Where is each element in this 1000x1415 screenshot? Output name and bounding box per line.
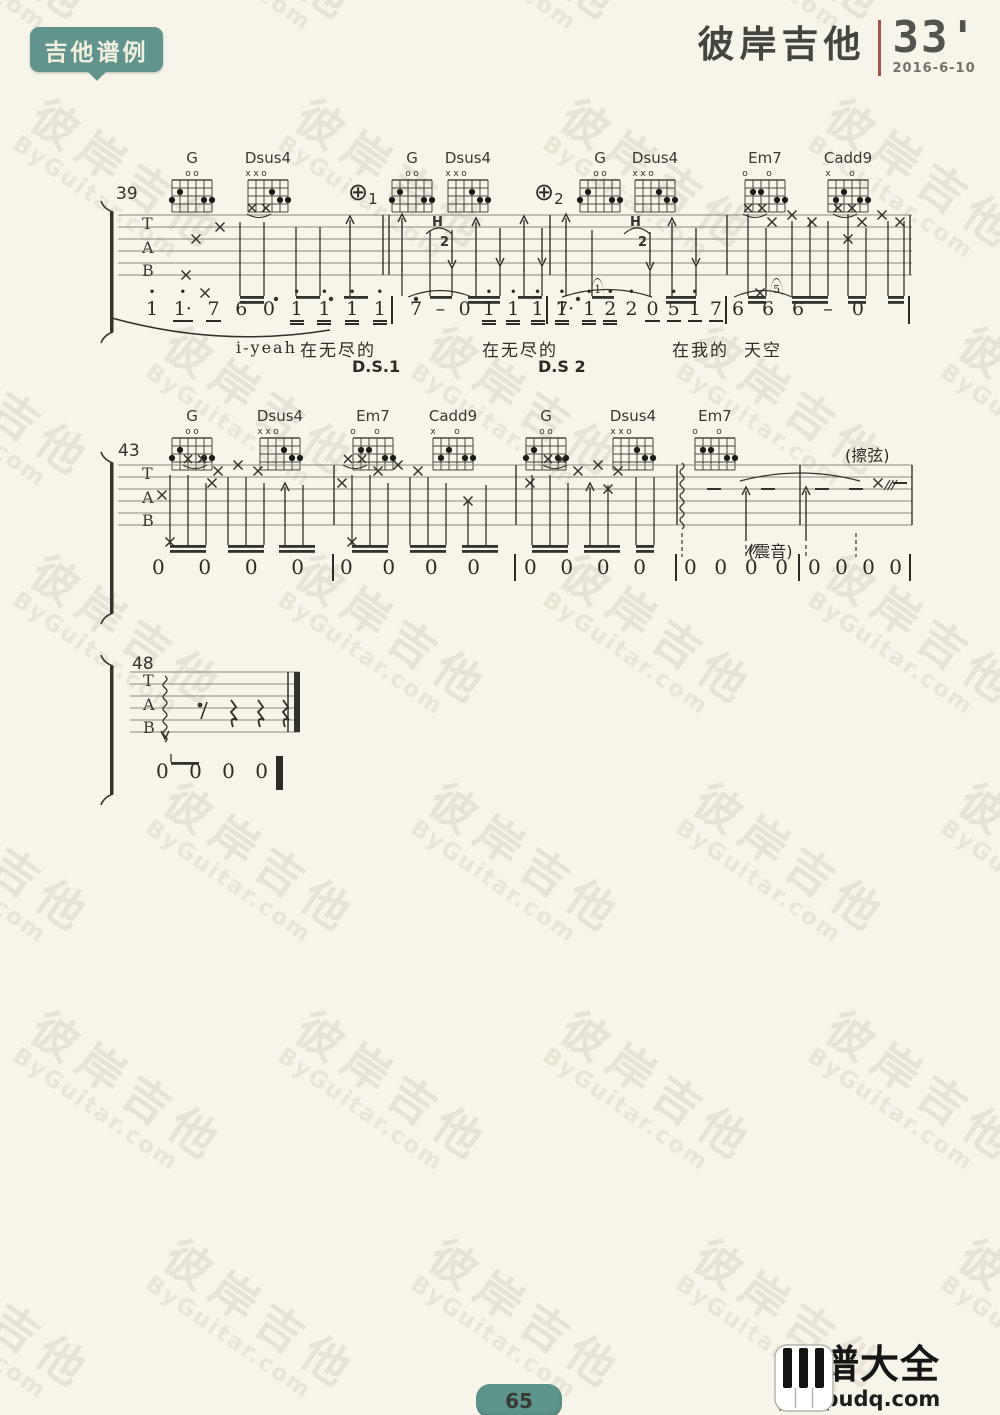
svg-text:o: o (692, 427, 698, 437)
page-number-pill: 65 (476, 1384, 562, 1415)
jianpu-token: 1• (532, 298, 544, 320)
jianpu-token: 0 (425, 556, 438, 578)
jianpu-token: 7 (710, 298, 722, 320)
jianpu-barline (909, 554, 911, 581)
watermark-tile: 彼岸吉他ByGuitar.com (141, 1222, 374, 1415)
jianpu-barline (276, 756, 283, 790)
jianpu-measure: 0000 (808, 556, 902, 578)
jianpu-token: 0 (255, 760, 268, 782)
jianpu-token: 5• (668, 298, 680, 320)
scratch-strings-annotation: (擦弦) (845, 442, 890, 466)
svg-text:o: o (413, 169, 419, 179)
page-number: 65 (505, 1389, 533, 1413)
svg-text:x: x (825, 169, 831, 179)
chord-label: Dsus4 (242, 150, 294, 166)
svg-text:o: o (350, 427, 356, 437)
brand-name: 彼岸吉他 (698, 16, 866, 74)
chord-label: Cadd9 (822, 150, 874, 166)
svg-text:T: T (142, 464, 153, 483)
watermark-tile: 彼岸吉他ByGuitar.com (141, 0, 374, 52)
jianpu-token: 0 (714, 556, 727, 578)
jianpu-token: 0 (684, 556, 697, 578)
svg-text:2: 2 (440, 235, 449, 250)
svg-text:o: o (716, 427, 722, 437)
jianpu-barline (675, 554, 677, 581)
jianpu-barline (514, 554, 516, 581)
svg-text:o: o (461, 169, 467, 179)
jianpu-token: 0 (152, 556, 165, 578)
logo-divider (878, 20, 881, 76)
chord-label: Dsus4 (607, 408, 659, 424)
jianpu-measure: 7–01•1•1•1• (410, 298, 568, 320)
sheet-page: 彼岸吉他ByGuitar.com彼岸吉他ByGuitar.com彼岸吉他ByGu… (0, 0, 1000, 1415)
svg-text:T: T (142, 214, 153, 233)
svg-text:o: o (273, 427, 279, 437)
svg-text:x: x (632, 169, 638, 179)
jianpu-token: 0 (291, 556, 304, 578)
watermark-tile: 彼岸吉他ByGuitar.com (406, 0, 639, 52)
tremolo-annotation: (震音) (748, 538, 793, 562)
watermark-tile: 彼岸吉他ByGuitar.com (0, 766, 108, 965)
svg-text:o: o (261, 169, 267, 179)
svg-text:x: x (265, 427, 271, 437)
jianpu-token: 0 (524, 556, 537, 578)
badge-label: 吉他谱例 (45, 33, 149, 67)
jianpu-token: 0 (467, 556, 480, 578)
lyric-word: 在我的 (672, 336, 729, 361)
chord-label: Dsus4 (254, 408, 306, 424)
jianpu-token: 1• (374, 298, 386, 320)
jianpu-measure: 0000 (156, 760, 268, 782)
svg-text:o: o (547, 427, 553, 437)
jianpu-token: 7· (556, 298, 574, 320)
jianpu-token: 0 (560, 556, 573, 578)
ds-mark-2: D.S 2 (538, 357, 586, 376)
svg-text:o: o (648, 169, 654, 179)
jianpu-token: 2• (625, 298, 637, 320)
jianpu-measure: 0000 (524, 556, 646, 578)
svg-text:x: x (640, 169, 646, 179)
svg-text:B: B (142, 261, 154, 280)
jianpu-barline (391, 296, 393, 324)
tab-staff-system-1: TABH2H2 (100, 200, 930, 350)
svg-text:o: o (593, 169, 599, 179)
jianpu-barline (332, 554, 334, 581)
jianpu-token: 7 (410, 298, 422, 320)
jianpu-token: 7 (207, 298, 219, 320)
brand-logo: 彼岸吉他 33' 2016-6-10 (698, 16, 978, 76)
jianpu-token: 1• (291, 298, 303, 320)
chord-label: G (166, 408, 218, 424)
svg-text:o: o (193, 427, 199, 437)
jianpu-token: 1• (318, 298, 330, 320)
jianpu-token: 1• (507, 298, 519, 320)
watermark-tile: 彼岸吉他ByGuitar.com (406, 766, 639, 965)
chord-label: Cadd9 (427, 408, 479, 424)
svg-text:x: x (618, 427, 624, 437)
jianpu-token: 0 (189, 760, 202, 782)
svg-text:B: B (143, 718, 155, 737)
footer-logo: 简谱大全 jianpudq.com (774, 1344, 940, 1410)
svg-text:A: A (141, 238, 154, 257)
jianpu-token: 1• (483, 298, 495, 320)
watermark-tile: 彼岸吉他ByGuitar.com (803, 994, 1000, 1193)
svg-text:x: x (610, 427, 616, 437)
jianpu-token: 65 (762, 298, 774, 320)
jianpu-token: 0 (597, 556, 610, 578)
lyric-word: 天空 (744, 336, 782, 361)
jianpu-token: 0 (382, 556, 395, 578)
lyric-word: i-yeah (236, 338, 297, 357)
jianpu-barline (725, 296, 727, 324)
svg-text:A: A (141, 488, 154, 507)
jianpu-token: 0 (222, 760, 235, 782)
watermark-tile: 彼岸吉他ByGuitar.com (8, 994, 241, 1193)
svg-text:A: A (142, 695, 155, 714)
jianpu-token: 0 (889, 556, 902, 578)
chord-label: G (520, 408, 572, 424)
chord-label: Dsus4 (629, 150, 681, 166)
piano-keys-icon (774, 1344, 834, 1412)
svg-text:o: o (185, 427, 191, 437)
svg-text:x: x (245, 169, 251, 179)
jianpu-token: 0 (198, 556, 211, 578)
svg-text:o: o (405, 169, 411, 179)
jianpu-measure: 6656–0 (732, 298, 864, 320)
svg-text:o: o (601, 169, 607, 179)
watermark-tile: 彼岸吉他ByGuitar.com (0, 1222, 108, 1415)
chord-label: Dsus4 (442, 150, 494, 166)
jianpu-token: 0 (459, 298, 471, 320)
watermark-tile: 彼岸吉他ByGuitar.com (538, 994, 771, 1193)
jianpu-token: 0 (862, 556, 875, 578)
svg-text:x: x (445, 169, 451, 179)
logo-duration: 33' (893, 16, 978, 60)
jianpu-token: 0 (340, 556, 353, 578)
jianpu-token: 6 (732, 298, 744, 320)
chord-label: G (574, 150, 626, 166)
svg-text:T: T (143, 671, 154, 690)
watermark-tile: 彼岸吉他ByGuitar.com (671, 766, 904, 965)
jianpu-token: – (434, 298, 446, 320)
jianpu-measure: 7·1•12•2•05•1•7 (556, 298, 722, 320)
jianpu-token: 1·• (174, 298, 192, 320)
chord-label: Em7 (689, 408, 741, 424)
jianpu-token: 0 (245, 556, 258, 578)
tab-example-badge: 吉他谱例 (30, 27, 163, 72)
svg-text:x: x (453, 169, 459, 179)
jianpu-barline (908, 296, 910, 324)
logo-date: 2016-6-10 (893, 61, 976, 76)
jianpu-measure: 1•1·•7601•1•1•1• (146, 298, 386, 320)
svg-text:o: o (539, 427, 545, 437)
svg-text:o: o (185, 169, 191, 179)
chord-label: G (386, 150, 438, 166)
jianpu-token: 6 (792, 298, 804, 320)
jianpu-token: 1• (689, 298, 701, 320)
svg-text:o: o (849, 169, 855, 179)
jianpu-barline (798, 554, 800, 581)
svg-text:o: o (766, 169, 772, 179)
svg-text:o: o (193, 169, 199, 179)
jianpu-token: 0 (852, 298, 864, 320)
ds-mark-1: D.S.1 (352, 357, 400, 376)
chord-label: Em7 (347, 408, 399, 424)
svg-text:2: 2 (638, 235, 647, 250)
watermark-tile: 彼岸吉他ByGuitar.com (273, 994, 506, 1193)
jianpu-measure: 0000 (152, 556, 304, 578)
chord-label: Em7 (739, 150, 791, 166)
svg-text:B: B (142, 511, 154, 530)
svg-text:o: o (374, 427, 380, 437)
jianpu-token: – (822, 298, 834, 320)
jianpu-token: 1•1 (583, 298, 595, 320)
watermark-tile: 彼岸吉他ByGuitar.com (936, 766, 1000, 965)
jianpu-token: 1• (146, 298, 158, 320)
svg-text:x: x (253, 169, 259, 179)
jianpu-token: 6 (235, 298, 247, 320)
chord-label: G (166, 150, 218, 166)
jianpu-token: 0 (646, 298, 658, 320)
svg-text:o: o (742, 169, 748, 179)
jianpu-token: 0 (156, 760, 169, 782)
jianpu-barline (546, 296, 548, 324)
jianpu-token: 0 (808, 556, 821, 578)
svg-text:o: o (626, 427, 632, 437)
watermark-tile: 彼岸吉他ByGuitar.com (936, 310, 1000, 509)
jianpu-token: 0 (263, 298, 275, 320)
jianpu-token: 0 (835, 556, 848, 578)
jianpu-token: 0 (633, 556, 646, 578)
jianpu-token: 1• (346, 298, 358, 320)
svg-text:o: o (454, 427, 460, 437)
tab-staff-system-2: TAB (100, 455, 930, 615)
jianpu-token: 2• (604, 298, 616, 320)
jianpu-measure: 0000 (340, 556, 480, 578)
watermark-tile: 彼岸吉他ByGuitar.com (936, 1222, 1000, 1415)
svg-text:x: x (257, 427, 263, 437)
svg-text:x: x (430, 427, 436, 437)
watermark-tile: 彼岸吉他ByGuitar.com (0, 310, 108, 509)
